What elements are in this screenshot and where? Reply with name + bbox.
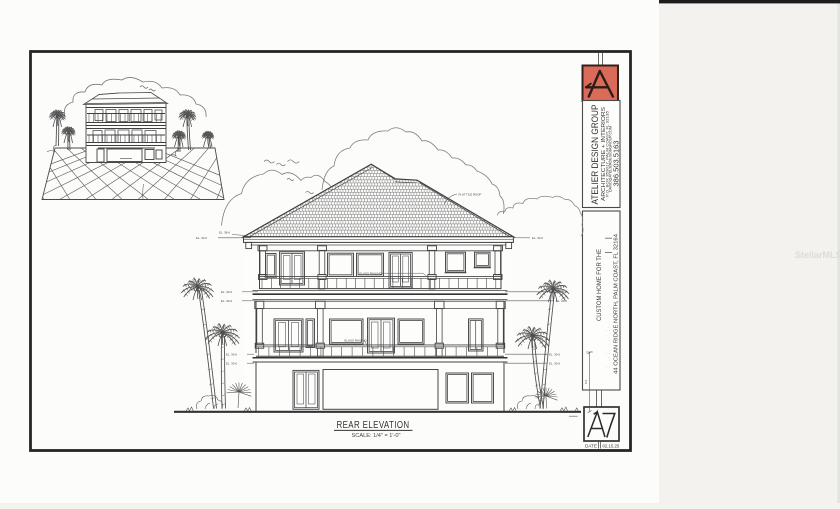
svg-text:GLASS RAILING: GLASS RAILING bbox=[344, 339, 368, 343]
svg-text:StellarMLS: StellarMLS bbox=[795, 250, 840, 260]
svg-text:: .·:. .·. :·.: : .·:. .·. :·. bbox=[605, 321, 612, 368]
svg-text:EL. 30-6: EL. 30-6 bbox=[226, 352, 237, 356]
svg-text:SCALE: 1/4" = 1'-0": SCALE: 1/4" = 1'-0" bbox=[352, 433, 401, 439]
svg-text:EL. 30-6: EL. 30-6 bbox=[549, 352, 560, 356]
svg-text:EL. 30-6: EL. 30-6 bbox=[549, 361, 560, 365]
svg-text:CUSTOM HOME FOR THE: CUSTOM HOME FOR THE bbox=[596, 249, 603, 321]
svg-text:EL. 30-6: EL. 30-6 bbox=[226, 361, 237, 365]
svg-text:DAVID@ATELIERDESIGNGROUP.COM: DAVID@ATELIERDESIGNGROUP.COM bbox=[609, 126, 613, 192]
svg-text:EL. 30-6: EL. 30-6 bbox=[221, 290, 232, 294]
svg-text:GLASS RAILING: GLASS RAILING bbox=[359, 271, 383, 275]
svg-text:02.15.25: 02.15.25 bbox=[603, 444, 620, 449]
svg-text:386.503.5163: 386.503.5163 bbox=[614, 140, 621, 186]
svg-text:9-4: 9-4 bbox=[584, 380, 588, 384]
svg-text:FLAT TILE ROOF: FLAT TILE ROOF bbox=[459, 192, 482, 196]
svg-text:EL. 30-6: EL. 30-6 bbox=[196, 236, 207, 240]
svg-text:DATE: DATE bbox=[585, 444, 597, 449]
svg-text:44 OCEAN RIDGE NORTH, PALM COA: 44 OCEAN RIDGE NORTH, PALM COAST, FL 321… bbox=[613, 234, 619, 374]
svg-text:EL. 38-6: EL. 38-6 bbox=[219, 230, 230, 234]
svg-text:EL. 30-6: EL. 30-6 bbox=[221, 299, 232, 303]
svg-text:REAR ELEVATION: REAR ELEVATION bbox=[337, 420, 410, 431]
svg-text:ATELIER DESIGN GROUP: ATELIER DESIGN GROUP bbox=[590, 105, 600, 205]
svg-text:EL. 30-6: EL. 30-6 bbox=[532, 236, 543, 240]
